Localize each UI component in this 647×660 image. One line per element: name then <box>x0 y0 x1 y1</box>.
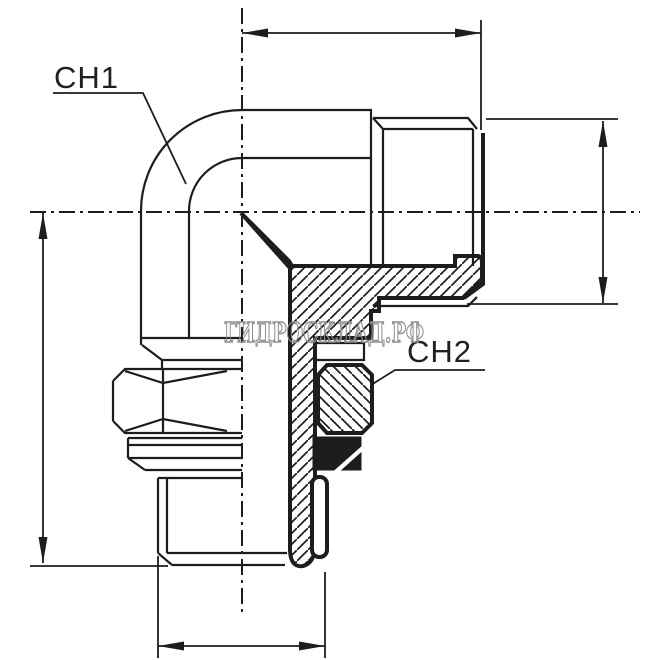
washer-outline <box>128 438 242 470</box>
locknut-profile <box>113 369 242 433</box>
arrowhead-left <box>158 642 184 651</box>
locknut-outline <box>113 369 242 433</box>
port-thread-top <box>373 118 477 266</box>
arrowhead-right <box>299 642 325 651</box>
locknut-chamfer-arcs <box>125 371 227 431</box>
arrowhead-right <box>455 29 481 38</box>
dimension-left <box>30 213 168 566</box>
callout-ch1: CH1 <box>53 60 186 184</box>
arrowhead-bottom <box>39 537 48 563</box>
stud-thread-outline <box>158 478 287 565</box>
seal-washer-section <box>313 437 361 470</box>
thread-section-strip <box>312 477 327 557</box>
ch2-leader-line <box>371 370 485 385</box>
ch1-leader-line <box>53 93 186 184</box>
arrowhead-top <box>39 213 48 239</box>
dimension-top <box>242 20 481 130</box>
technical-drawing-canvas: CH1 CH2 ГИДРОСКЛАД.РФ <box>0 0 647 660</box>
arrowhead-left <box>242 29 268 38</box>
arrowhead-bottom <box>599 277 608 303</box>
watermark-text: ГИДРОСКЛАД.РФ <box>224 318 424 349</box>
arrowhead-top <box>599 121 608 147</box>
ch1-label: CH1 <box>54 60 119 95</box>
locknut-section-hatch <box>318 365 372 433</box>
elbow-fitting-drawing: CH1 CH2 ГИДРОСКЛАД.РФ <box>0 0 647 660</box>
